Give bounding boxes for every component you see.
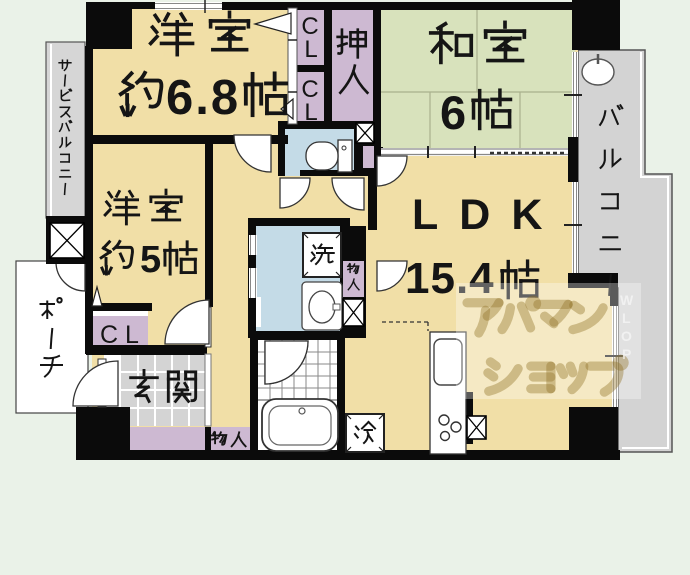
svg-text:P: P [622, 346, 631, 362]
svg-text:L: L [622, 310, 631, 326]
svg-text:6: 6 [440, 86, 466, 139]
svg-text:W: W [620, 292, 634, 308]
svg-text:CL: CL [100, 321, 146, 349]
svg-text:L: L [304, 36, 317, 63]
svg-text:6.8: 6.8 [166, 71, 240, 125]
svg-text:5: 5 [140, 239, 161, 281]
svg-text:L: L [304, 99, 317, 126]
svg-text:O: O [621, 328, 632, 344]
svg-text:LDK: LDK [412, 191, 563, 239]
